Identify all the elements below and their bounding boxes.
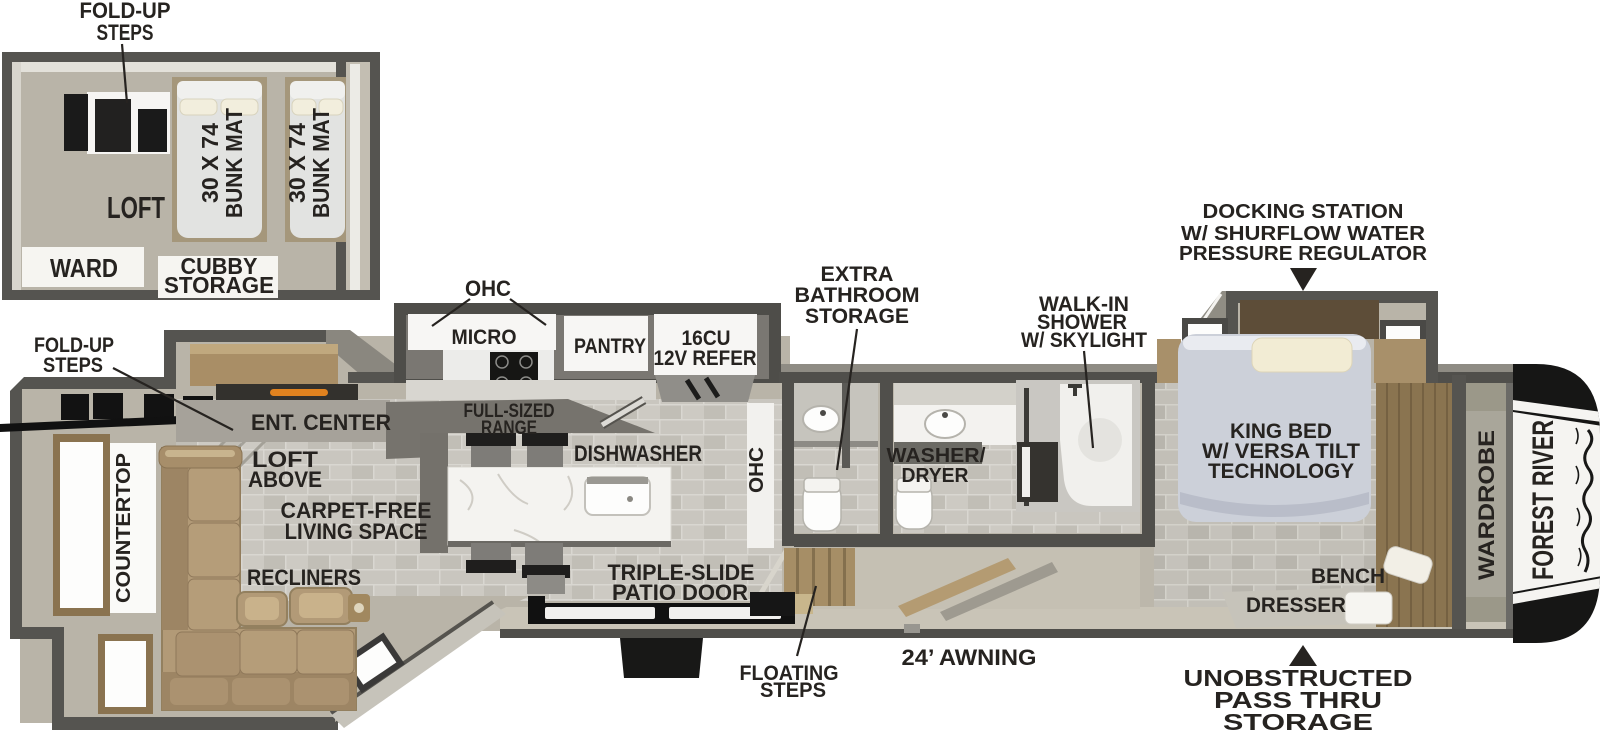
svg-text:STEPS: STEPS <box>97 20 154 45</box>
svg-text:30 X 74: 30 X 74 <box>284 123 310 203</box>
svg-text:STEPS: STEPS <box>760 679 826 702</box>
svg-text:MICRO: MICRO <box>452 326 517 349</box>
svg-text:EXTRA: EXTRA <box>821 263 894 286</box>
svg-text:BATHROOM: BATHROOM <box>795 284 920 307</box>
svg-text:OHC: OHC <box>465 276 511 301</box>
svg-text:TECHNOLOGY: TECHNOLOGY <box>1208 459 1354 483</box>
svg-text:DRYER: DRYER <box>902 465 970 487</box>
svg-text:LOFT: LOFT <box>107 190 165 225</box>
svg-text:PANTRY: PANTRY <box>574 335 646 358</box>
svg-text:STORAGE: STORAGE <box>1223 709 1373 735</box>
svg-text:12V REFER: 12V REFER <box>654 347 757 370</box>
svg-text:PRESSURE REGULATOR: PRESSURE REGULATOR <box>1179 242 1427 265</box>
svg-text:24’ AWNING: 24’ AWNING <box>902 645 1037 670</box>
svg-text:STORAGE: STORAGE <box>805 305 909 328</box>
svg-text:ABOVE: ABOVE <box>248 467 322 492</box>
svg-text:RANGE: RANGE <box>481 418 537 439</box>
svg-text:OHC: OHC <box>746 447 768 493</box>
svg-text:ENT. CENTER: ENT. CENTER <box>251 410 391 435</box>
svg-text:STORAGE: STORAGE <box>164 272 274 298</box>
svg-text:STEPS: STEPS <box>43 354 103 377</box>
svg-text:WARDROBE: WARDROBE <box>1474 430 1499 580</box>
svg-text:BUNK MAT: BUNK MAT <box>308 108 334 218</box>
svg-text:W/ SKYLIGHT: W/ SKYLIGHT <box>1021 329 1147 352</box>
svg-text:LIVING SPACE: LIVING SPACE <box>285 519 428 544</box>
svg-text:FOREST RIVER: FOREST RIVER <box>1527 420 1560 580</box>
svg-text:PATIO DOOR: PATIO DOOR <box>612 580 748 605</box>
svg-text:DOCKING STATION: DOCKING STATION <box>1203 200 1404 223</box>
svg-text:DRESSER: DRESSER <box>1246 594 1346 617</box>
svg-text:BUNK MAT: BUNK MAT <box>221 108 247 218</box>
svg-text:DISHWASHER: DISHWASHER <box>574 441 702 466</box>
svg-text:WARD: WARD <box>50 253 118 283</box>
svg-text:BENCH: BENCH <box>1311 565 1385 588</box>
svg-text:RECLINERS: RECLINERS <box>247 565 361 590</box>
svg-text:COUNTERTOP: COUNTERTOP <box>113 453 135 603</box>
svg-text:30 X 74: 30 X 74 <box>197 123 223 203</box>
svg-text:WASHER/: WASHER/ <box>887 445 986 467</box>
